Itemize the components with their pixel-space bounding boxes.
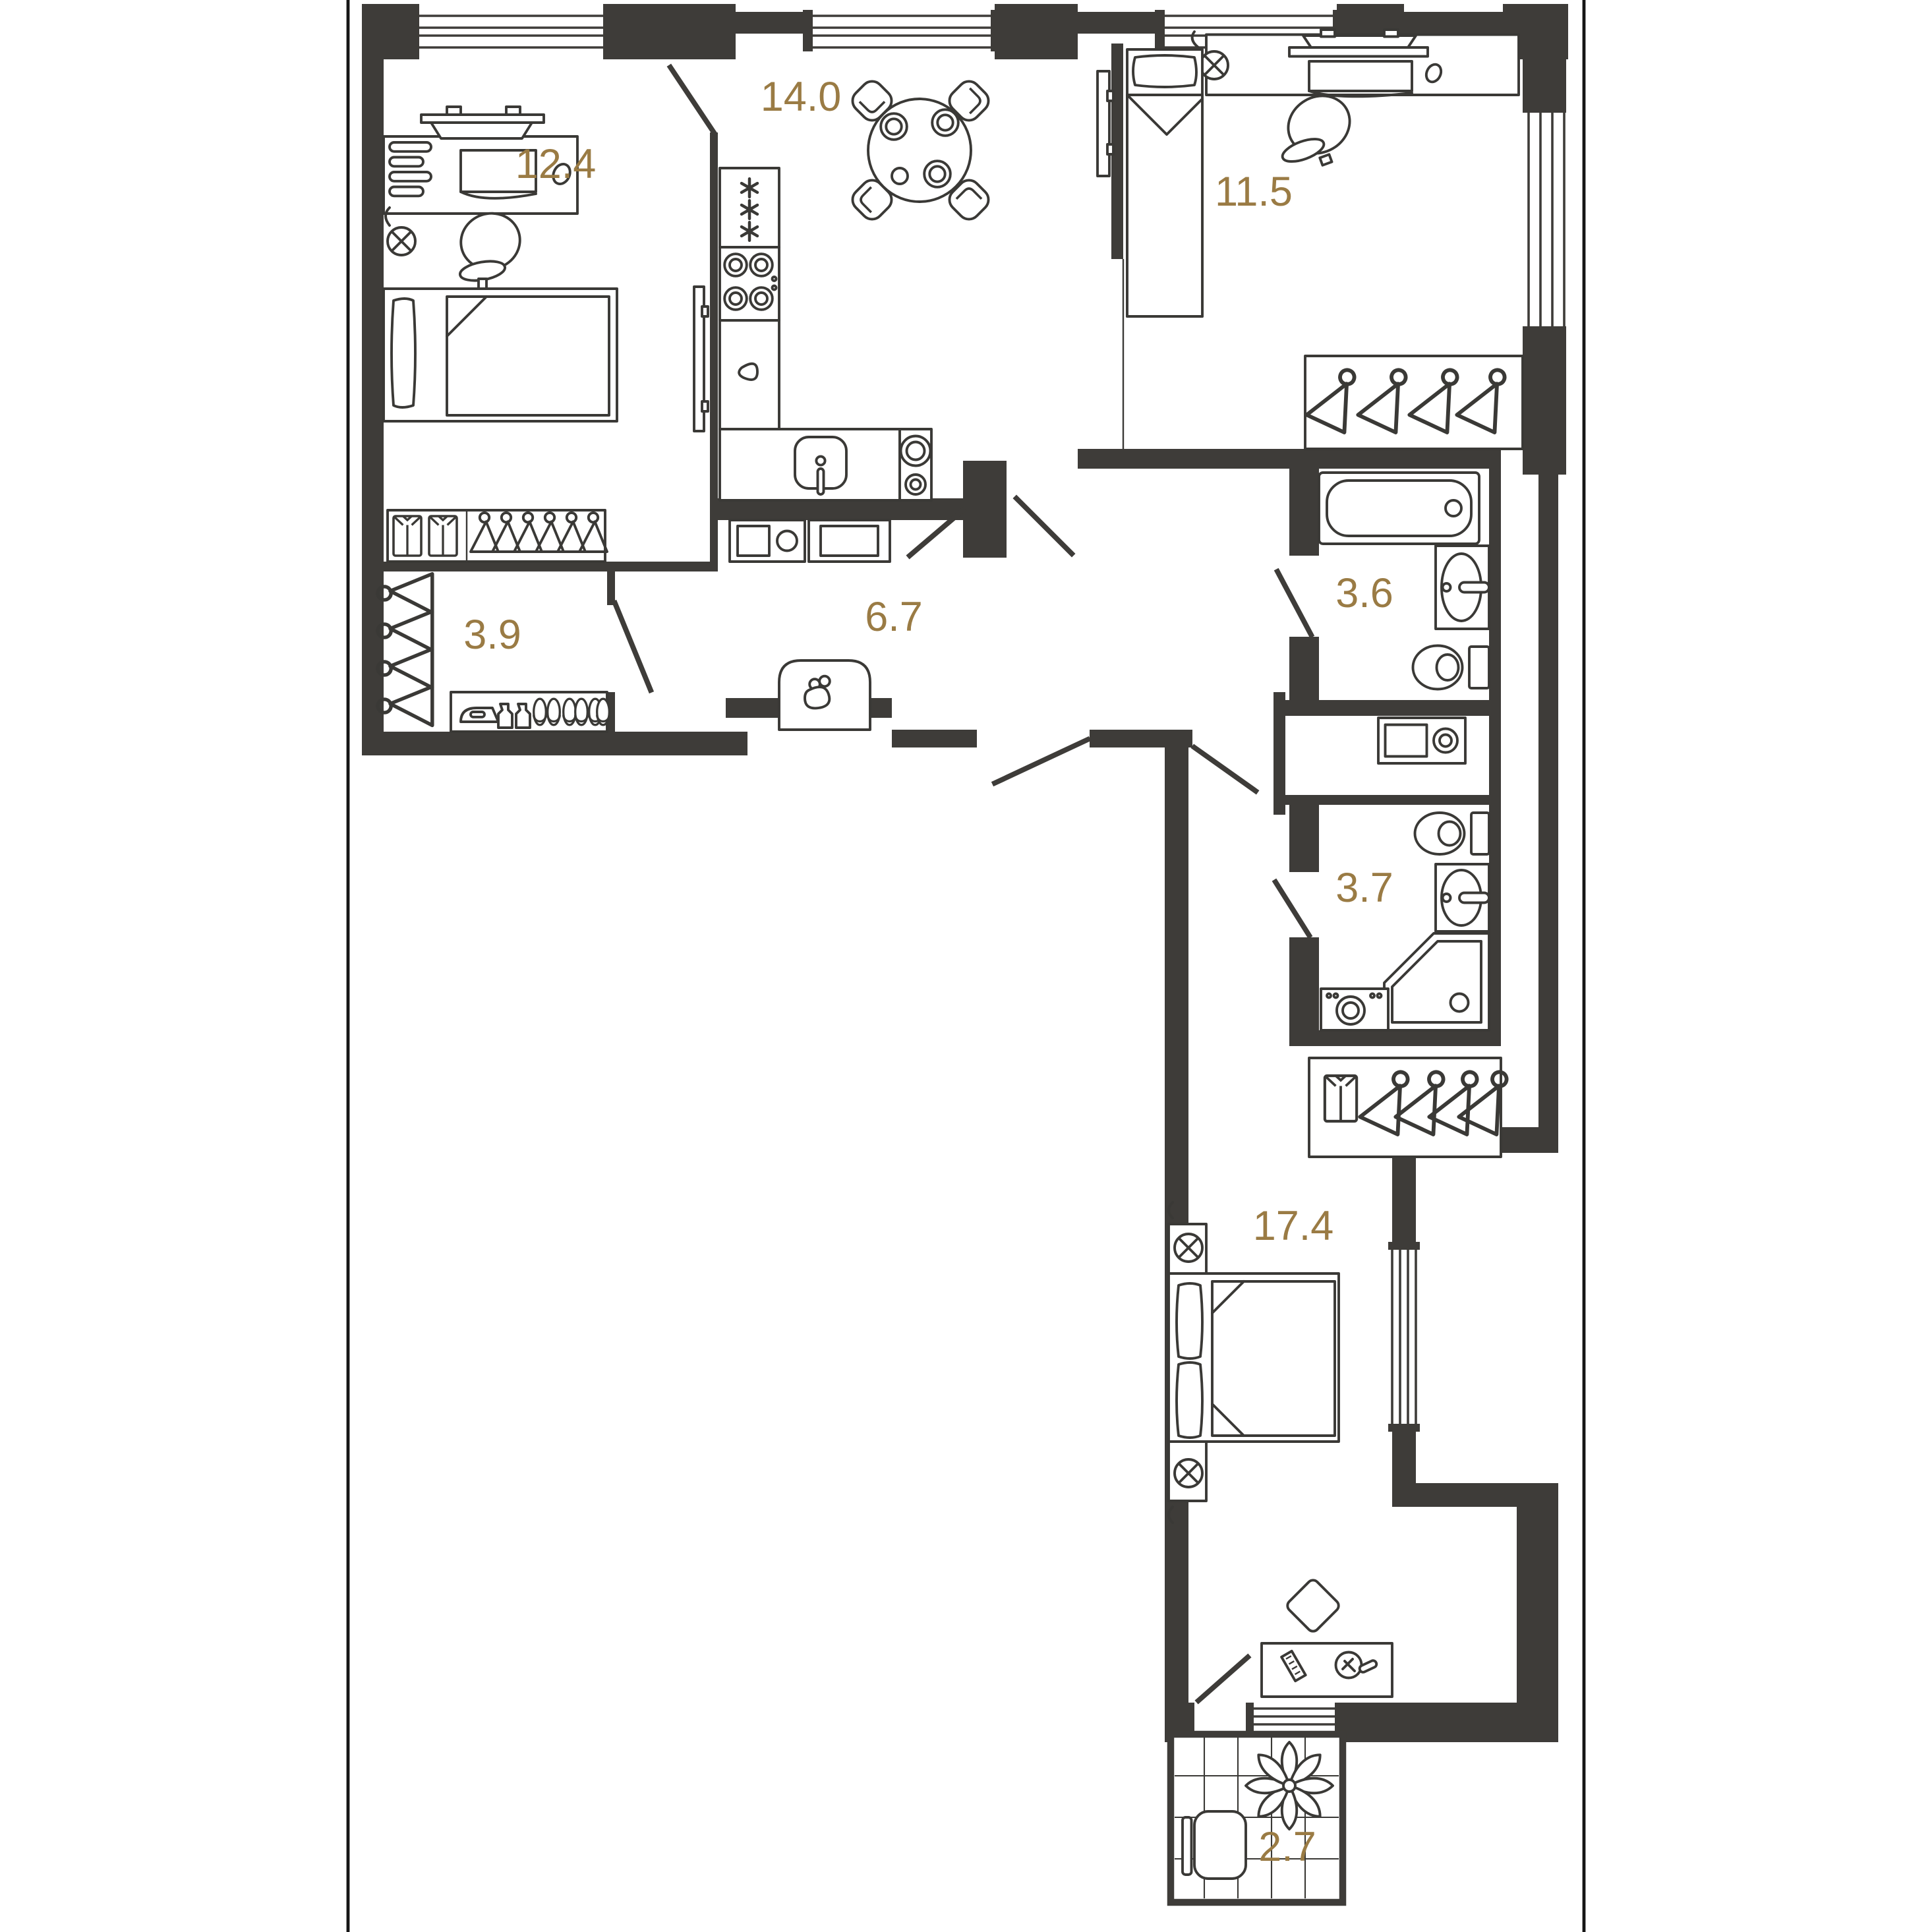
wall xyxy=(1090,730,1192,747)
washer-dishwasher-icon xyxy=(730,520,890,562)
double-bed-icon xyxy=(1169,1273,1339,1442)
room-kitchen-dining: 14.0 xyxy=(720,71,1113,562)
door-shower-room xyxy=(1275,882,1309,935)
plant-icon xyxy=(1246,1742,1333,1829)
wardrobe-icon xyxy=(1305,356,1523,449)
wall xyxy=(362,12,384,755)
room-bathroom: 3.6 xyxy=(1319,473,1489,763)
floor-plan: 12.4 xyxy=(0,0,1932,1932)
washbasin-icon xyxy=(1436,546,1489,629)
wall xyxy=(1538,469,1558,1153)
room-hallway: 6.7 xyxy=(779,594,923,730)
window-bedroom-top-left xyxy=(409,10,613,51)
wall xyxy=(384,562,718,571)
room-bedroom-top-right: 11.5 xyxy=(1123,30,1523,449)
room-label-master: 17.4 xyxy=(1253,1203,1334,1249)
wall xyxy=(1392,1153,1416,1246)
room-label-hallway: 6.7 xyxy=(865,594,923,640)
room-label-balcony: 2.7 xyxy=(1258,1824,1316,1870)
wall xyxy=(1273,692,1285,815)
wardrobe-icon xyxy=(388,510,607,562)
wall xyxy=(892,730,977,747)
wall xyxy=(1078,449,1501,469)
room-label-closet: 3.9 xyxy=(463,612,521,658)
wall xyxy=(1285,700,1501,716)
wall xyxy=(963,461,1007,558)
door-master-bedroom xyxy=(1194,747,1256,791)
wall xyxy=(1289,469,1319,556)
seat-icon xyxy=(1183,1811,1246,1879)
wall xyxy=(1523,34,1566,109)
room-walk-in-closet: 3.9 xyxy=(378,574,609,732)
hangers-rail-icon xyxy=(378,574,432,726)
floor-plan-page: 12.4 xyxy=(0,0,1932,1932)
door-balcony xyxy=(1198,1657,1248,1701)
wall xyxy=(710,498,963,520)
wall xyxy=(1285,795,1501,805)
wall xyxy=(1289,937,1319,1046)
washing-machine-icon xyxy=(1321,989,1388,1030)
tv-panel-icon xyxy=(694,287,708,431)
bathtub-icon xyxy=(1319,473,1479,544)
tv-panel-icon xyxy=(1098,71,1113,176)
door-bedroom-top-right xyxy=(1016,498,1072,554)
corner-shower-icon xyxy=(1384,933,1489,1030)
wall xyxy=(1489,469,1501,1046)
wall xyxy=(362,732,747,755)
iron-icon xyxy=(461,708,498,722)
fridge-icon xyxy=(720,168,779,247)
room-label-shower: 3.7 xyxy=(1335,865,1393,911)
laptop-icon xyxy=(1309,61,1412,96)
dressing-desk-icon xyxy=(1262,1643,1392,1697)
wall xyxy=(607,571,615,605)
door-bedroom-top-left xyxy=(670,67,714,132)
pouf-with-bag-icon xyxy=(779,660,870,730)
door-entrance xyxy=(995,740,1088,783)
window-bedroom-right-side xyxy=(1523,105,1566,334)
wall xyxy=(1392,1483,1558,1507)
single-bed-icon xyxy=(384,289,617,421)
kitchen-counter-sink-icon xyxy=(720,429,931,500)
window-kitchen xyxy=(803,10,1001,51)
wall xyxy=(1339,1703,1558,1742)
single-bed-icon xyxy=(1127,49,1202,316)
room-label-kitchen: 14.0 xyxy=(761,74,842,120)
wall xyxy=(1523,330,1566,475)
room-shower: 3.7 xyxy=(1321,813,1489,1030)
room-bedroom-master: 17.4 xyxy=(1169,1058,1521,1697)
door-bathroom xyxy=(1277,571,1311,635)
room-label-bathroom: 3.6 xyxy=(1335,570,1393,616)
wardrobe-icon xyxy=(1309,1058,1521,1157)
toilet-icon xyxy=(1415,813,1490,854)
desk-chair-icon xyxy=(454,206,527,289)
chair-icon xyxy=(1285,1578,1341,1634)
dining-set-icon xyxy=(848,77,993,224)
room-balcony: 2.7 xyxy=(1171,1734,1343,1902)
washing-machine-icon xyxy=(1378,718,1465,763)
window-master-bedroom xyxy=(1388,1242,1420,1432)
wall xyxy=(1289,637,1319,700)
closet-shelf-icon xyxy=(451,692,609,732)
room-bedroom-top-left: 12.4 xyxy=(384,107,708,562)
kitchen-cabinet-icon xyxy=(720,320,779,429)
slippers-icon xyxy=(534,699,610,725)
wall xyxy=(1289,1030,1501,1046)
wall xyxy=(995,4,1078,59)
washbasin-icon xyxy=(1436,864,1489,931)
wall xyxy=(603,4,736,59)
cooktop-icon xyxy=(720,247,779,320)
door-closet xyxy=(615,603,651,690)
room-label-bedroom-top-right: 11.5 xyxy=(1215,169,1293,215)
room-label-bedroom-top-left: 12.4 xyxy=(515,141,597,187)
monitor-icon xyxy=(421,107,544,138)
wall xyxy=(1289,805,1319,872)
toilet-icon xyxy=(1413,646,1490,689)
